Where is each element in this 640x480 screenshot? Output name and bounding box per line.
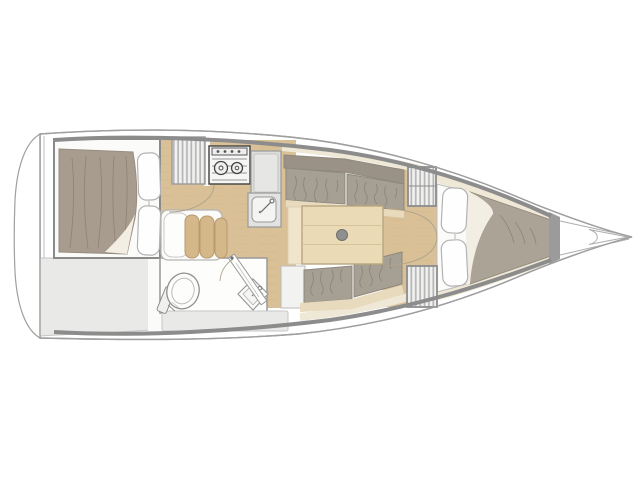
vanity-seat [161, 210, 227, 260]
mast-post [337, 230, 348, 241]
vanity-seat-white-cushion [164, 213, 188, 257]
seat-cushion-roll [200, 216, 214, 258]
stove [209, 146, 250, 184]
vberth-pillow-2 [441, 239, 468, 286]
chain-locker-bulkhead [549, 212, 560, 264]
settee-starboard-cushion-1 [304, 266, 352, 303]
seat-cushion-roll [215, 218, 227, 258]
floor-plan-canvas [0, 0, 640, 480]
table-side-trim [288, 207, 302, 264]
salon-table [302, 206, 383, 264]
settee-starboard-end-cabinet [281, 266, 305, 308]
aft-pillow-1 [137, 153, 161, 201]
aft-pillow-2 [137, 206, 161, 256]
doorway-floor [408, 204, 438, 268]
vberth-pillow-1 [441, 187, 468, 233]
aft-cabin [54, 139, 161, 258]
stove-burner-2 [232, 163, 243, 174]
galley-counter [251, 151, 281, 196]
boat-floor-plan [0, 0, 640, 480]
seat-cushion-roll [185, 215, 199, 258]
companionway-steps [172, 137, 205, 184]
galley-sink [248, 193, 281, 227]
stove-burner-1 [215, 162, 228, 175]
cockpit-storage-area [40, 258, 150, 336]
transom [14, 134, 40, 338]
